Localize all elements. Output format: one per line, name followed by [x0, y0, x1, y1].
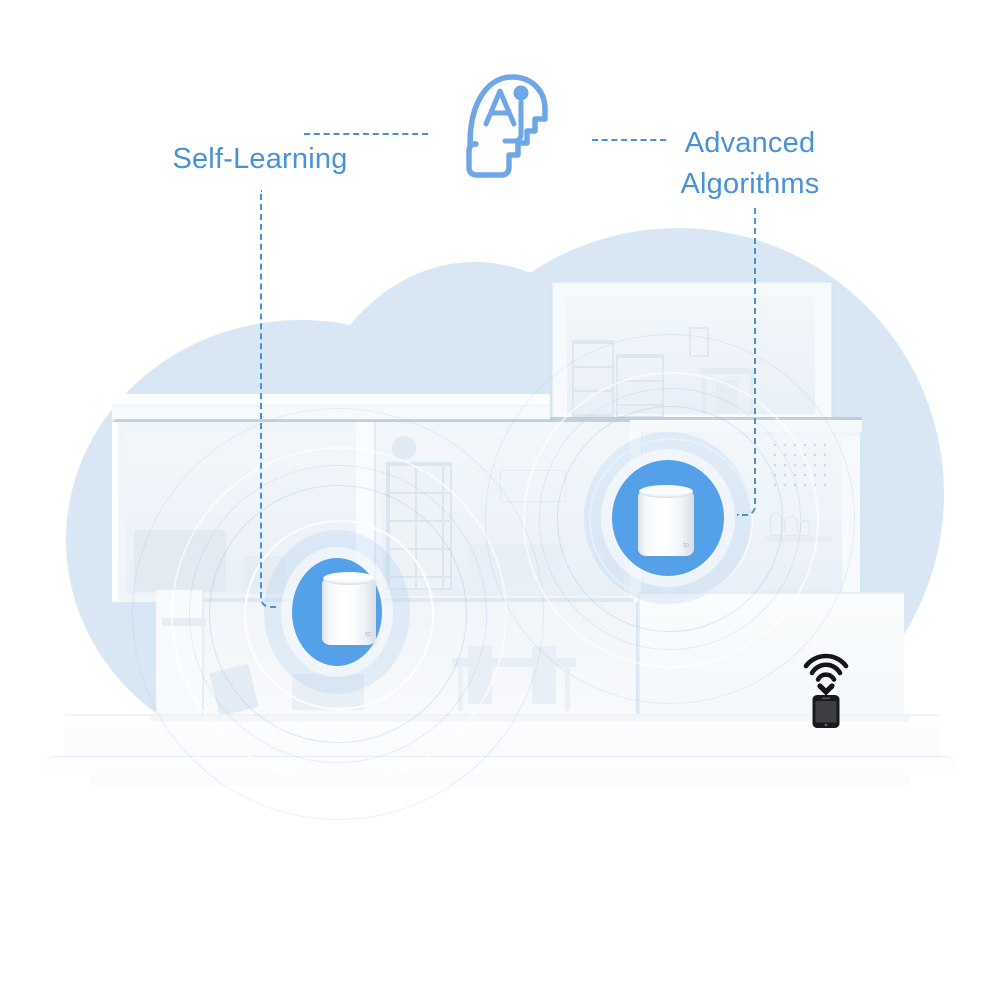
dining-chair — [468, 646, 492, 704]
first-floor-right-wing — [638, 592, 904, 722]
side-table — [162, 618, 206, 626]
feature-label-text: Self-Learning — [172, 143, 347, 175]
ai-dot — [514, 86, 529, 101]
second-floor-roof — [112, 394, 550, 420]
platform-shadow — [150, 714, 910, 722]
ai-head-icon — [460, 70, 552, 188]
middle-room-sofa — [468, 544, 564, 586]
attic-wall-frame — [689, 327, 709, 357]
attic-shelf-rack — [616, 354, 664, 418]
base-platform-bottom-step — [90, 773, 910, 786]
callout-line-left-horizontal — [304, 133, 428, 135]
wall-shelf — [764, 536, 832, 542]
wall-art — [500, 470, 566, 502]
dining-chair — [532, 646, 556, 704]
shelf-vase — [770, 512, 782, 536]
brand-logo: tp — [365, 631, 371, 638]
feature-label-line1: Advanced — [655, 123, 845, 164]
feature-label-line2: Algorithms — [655, 164, 845, 205]
dining-table-leg — [458, 667, 463, 711]
phone-with-wifi — [801, 648, 851, 728]
callout-line-right-vertical — [737, 206, 756, 516]
first-floor-left-wall — [156, 590, 204, 716]
feature-label-self-learning: Self-Learning — [130, 139, 390, 180]
brand-logo: tp — [683, 542, 689, 549]
arrow-down-icon — [820, 686, 832, 692]
mesh-router-unit-1: tp — [322, 577, 376, 645]
wifi-signal-icon — [806, 656, 846, 692]
shelf-vase — [800, 520, 810, 536]
mesh-router-unit-2: tp — [638, 490, 694, 556]
ai-mesh-wifi-illustration: tp tp Self-Learning Advanced Algorithms — [0, 0, 1000, 1000]
bookshelf — [386, 462, 452, 590]
attic-shelf-rack — [572, 340, 614, 418]
smartphone-icon — [813, 695, 840, 728]
letter-a — [486, 91, 514, 124]
decor-dots — [770, 440, 826, 488]
living-room-sofa — [292, 674, 364, 710]
left-room-cabinet — [134, 530, 226, 592]
dining-table-leg — [565, 667, 570, 711]
right-room-right-wall — [842, 436, 860, 602]
attic-chair — [716, 380, 738, 414]
callout-line-left-vertical — [260, 190, 279, 608]
shelf-vase — [784, 516, 798, 536]
head-outline — [469, 77, 545, 175]
wall-clock — [392, 436, 416, 460]
attic-desk-leg — [702, 374, 706, 414]
feature-label-advanced-algorithms: Advanced Algorithms — [655, 123, 845, 205]
